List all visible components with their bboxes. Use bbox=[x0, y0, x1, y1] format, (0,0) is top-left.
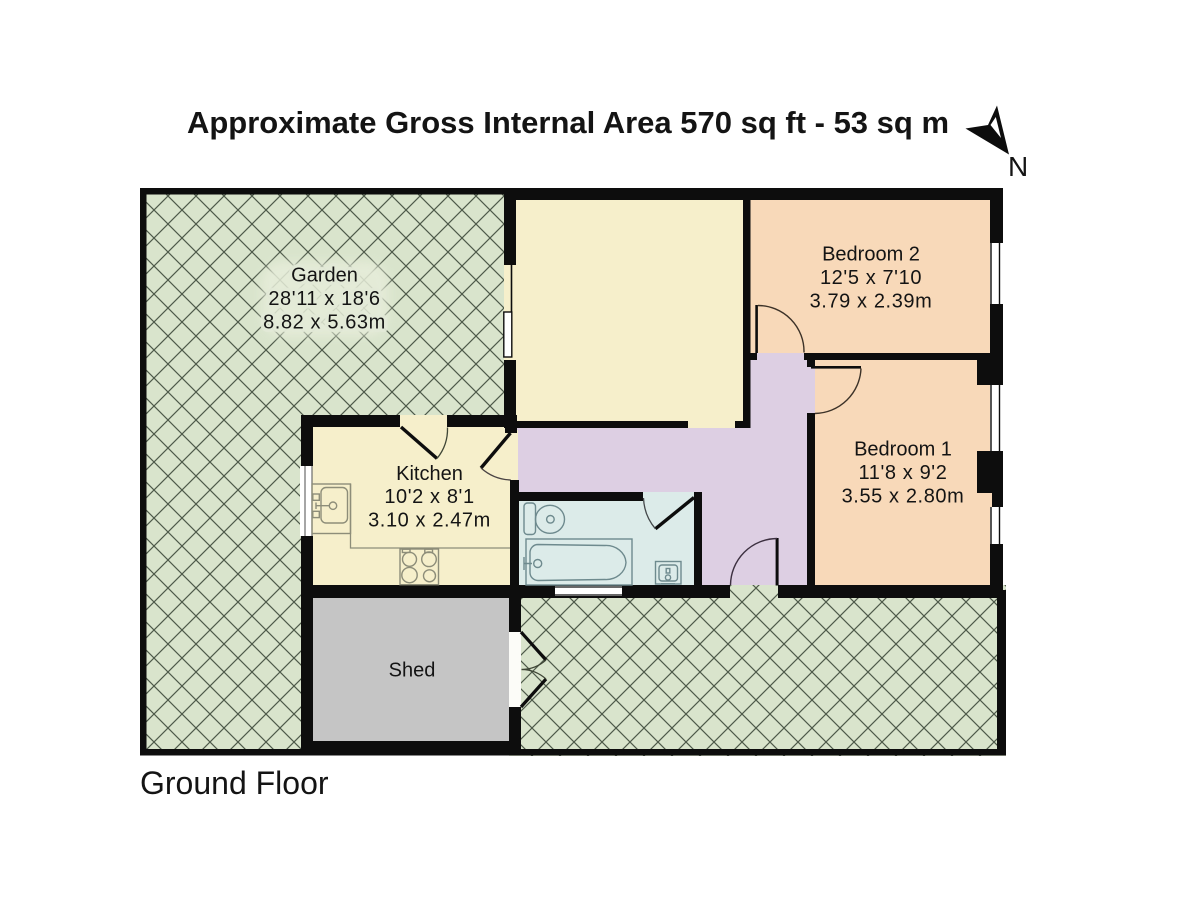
svg-text:10'2 x 8'1: 10'2 x 8'1 bbox=[384, 486, 474, 508]
svg-text:Garden: Garden bbox=[291, 265, 358, 287]
svg-text:N: N bbox=[1008, 151, 1028, 182]
svg-text:28'11 x 18'6: 28'11 x 18'6 bbox=[268, 288, 380, 310]
svg-text:12'5 x 7'10: 12'5 x 7'10 bbox=[820, 267, 922, 289]
svg-text:Approximate Gross Internal Are: Approximate Gross Internal Area 570 sq f… bbox=[187, 105, 949, 140]
svg-text:3.79 x 2.39m: 3.79 x 2.39m bbox=[810, 291, 933, 313]
svg-text:3.55 x 2.80m: 3.55 x 2.80m bbox=[842, 486, 965, 508]
svg-text:Kitchen: Kitchen bbox=[396, 463, 463, 485]
svg-text:8.82 x 5.63m: 8.82 x 5.63m bbox=[263, 312, 386, 334]
svg-text:11'8 x 9'2: 11'8 x 9'2 bbox=[859, 462, 948, 484]
svg-text:Ground Floor: Ground Floor bbox=[140, 765, 329, 801]
svg-text:Bedroom 2: Bedroom 2 bbox=[822, 244, 920, 266]
svg-text:Bedroom 1: Bedroom 1 bbox=[854, 439, 952, 461]
svg-text:Shed: Shed bbox=[389, 660, 436, 682]
svg-text:3.10 x 2.47m: 3.10 x 2.47m bbox=[368, 510, 491, 532]
